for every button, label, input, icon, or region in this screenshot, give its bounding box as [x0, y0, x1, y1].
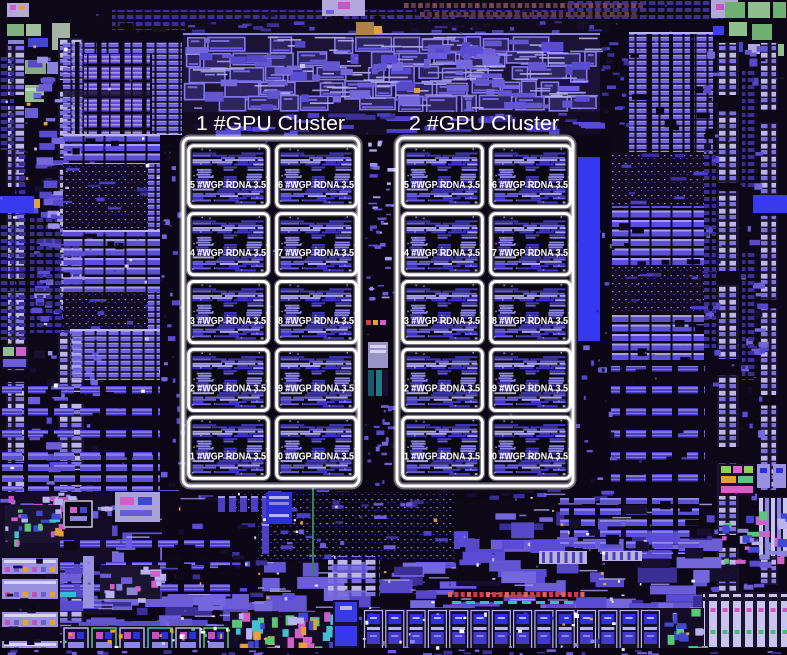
svg-text:1 #GPU Cluster: 1 #GPU Cluster — [196, 112, 345, 135]
svg-text:1 #WGP RDNA 3.5: 1 #WGP RDNA 3.5 — [190, 452, 267, 463]
svg-text:4 #WGP RDNA 3.5: 4 #WGP RDNA 3.5 — [190, 248, 267, 259]
svg-text:0 #WGP RDNA 3.5: 0 #WGP RDNA 3.5 — [278, 452, 355, 463]
svg-text:9 #WGP RDNA 3.5: 9 #WGP RDNA 3.5 — [492, 384, 569, 395]
svg-text:2 #WGP RDNA 3.5: 2 #WGP RDNA 3.5 — [190, 384, 267, 395]
svg-text:2 #GPU Cluster: 2 #GPU Cluster — [409, 112, 559, 135]
svg-text:9 #WGP RDNA 3.5: 9 #WGP RDNA 3.5 — [278, 384, 355, 395]
svg-text:5 #WGP RDNA 3.5: 5 #WGP RDNA 3.5 — [190, 180, 267, 191]
svg-text:3 #WGP RDNA 3.5: 3 #WGP RDNA 3.5 — [404, 316, 481, 327]
svg-text:2 #WGP RDNA 3.5: 2 #WGP RDNA 3.5 — [404, 384, 481, 395]
svg-text:6 #WGP RDNA 3.5: 6 #WGP RDNA 3.5 — [278, 180, 355, 191]
svg-text:6 #WGP RDNA 3.5: 6 #WGP RDNA 3.5 — [492, 180, 569, 191]
svg-text:4 #WGP RDNA 3.5: 4 #WGP RDNA 3.5 — [404, 248, 481, 259]
svg-text:8 #WGP RDNA 3.5: 8 #WGP RDNA 3.5 — [492, 316, 569, 327]
svg-text:1 #WGP RDNA 3.5: 1 #WGP RDNA 3.5 — [404, 452, 481, 463]
svg-text:0 #WGP RDNA 3.5: 0 #WGP RDNA 3.5 — [492, 452, 569, 463]
svg-text:3 #WGP RDNA 3.5: 3 #WGP RDNA 3.5 — [190, 316, 267, 327]
svg-text:7 #WGP RDNA 3.5: 7 #WGP RDNA 3.5 — [278, 248, 355, 259]
svg-text:7 #WGP RDNA 3.5: 7 #WGP RDNA 3.5 — [492, 248, 569, 259]
svg-text:5 #WGP RDNA 3.5: 5 #WGP RDNA 3.5 — [404, 180, 481, 191]
svg-text:8 #WGP RDNA 3.5: 8 #WGP RDNA 3.5 — [278, 316, 355, 327]
